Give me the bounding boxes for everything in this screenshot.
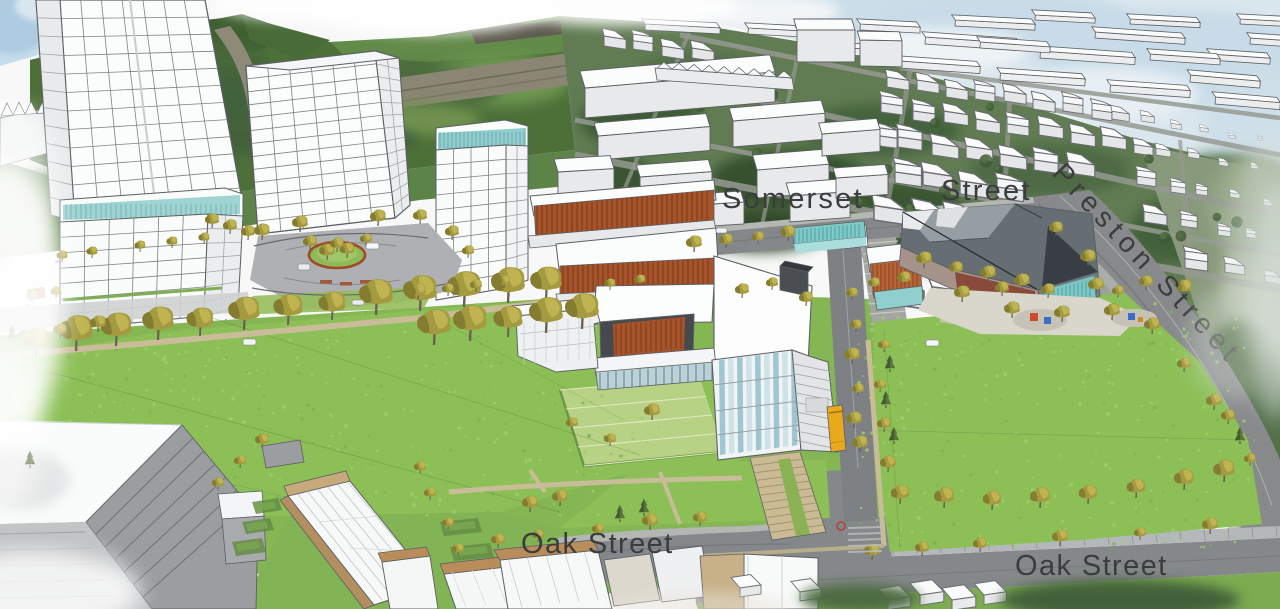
svg-text:Oak Street: Oak Street [521,528,674,560]
svg-text:Somerset: Somerset [722,183,864,215]
svg-text:Street: Street [941,175,1032,207]
svg-text:Oak Street: Oak Street [1015,550,1168,582]
